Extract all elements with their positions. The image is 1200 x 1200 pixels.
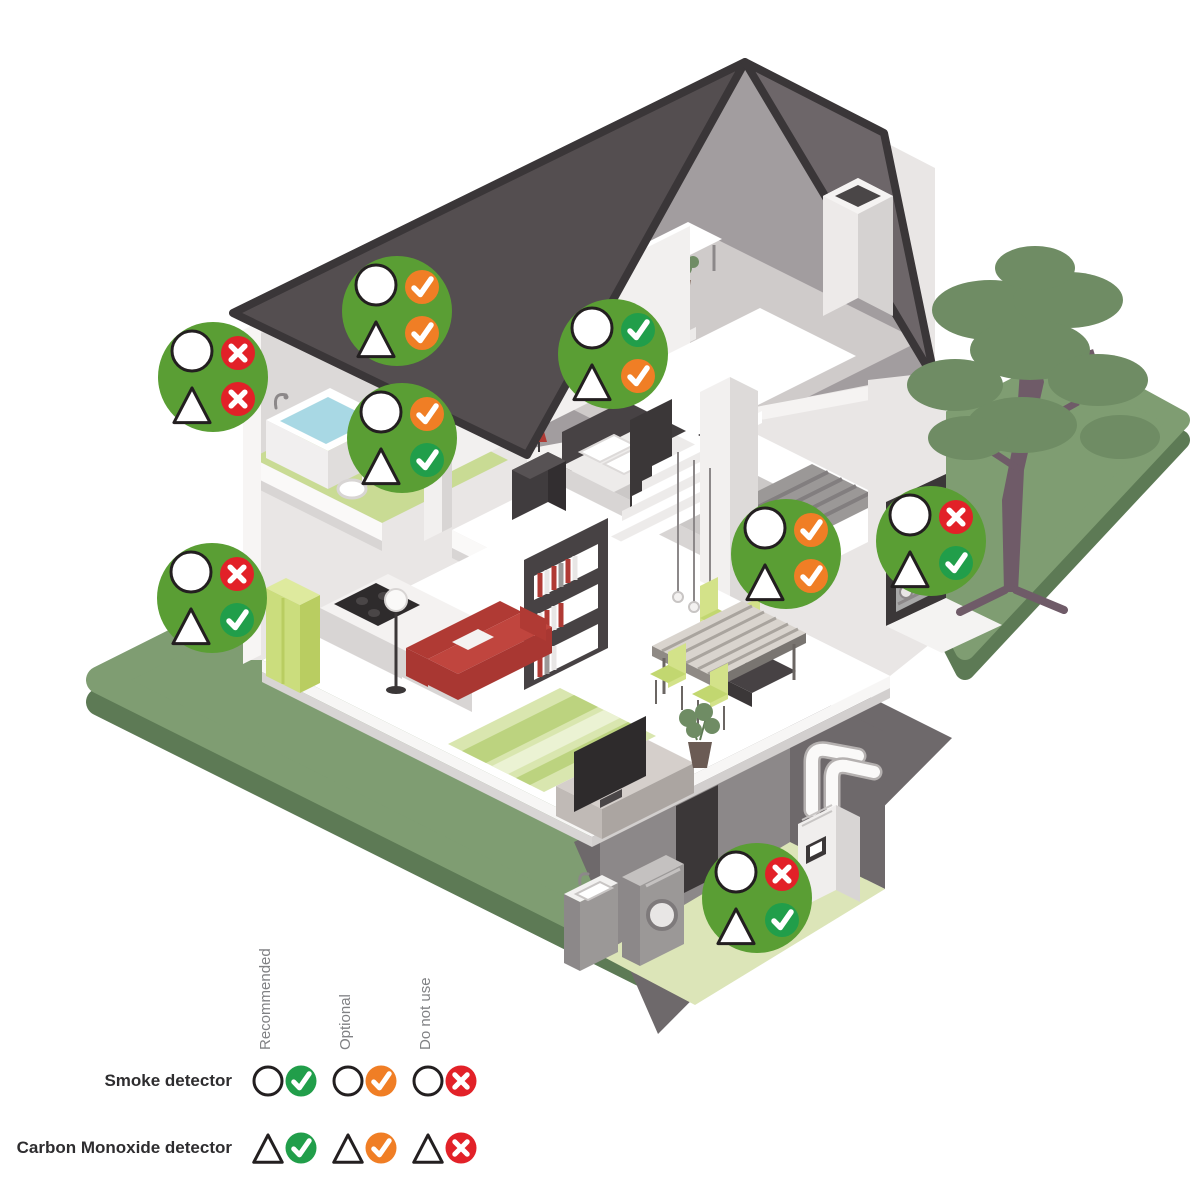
co-detector-symbol [254, 1135, 283, 1162]
co-status-check-mark-icon [621, 359, 655, 393]
legend-cell-smoke-optional [330, 1063, 399, 1104]
detector-badge-attic [341, 255, 453, 367]
legend-row-label-smoke: Smoke detector [0, 1071, 232, 1091]
co-status-check-mark-icon [939, 546, 973, 580]
co-status-check-mark-icon [410, 443, 444, 477]
smoke-detector-symbol [414, 1067, 442, 1095]
co-status-check-mark-icon [220, 603, 254, 637]
detector-badge-stair-landing [557, 298, 669, 410]
legend-row-label-co: Carbon Monoxide detector [0, 1138, 232, 1158]
co-optional-check-mark-icon [366, 1133, 397, 1164]
detector-badge-kitchen [156, 542, 268, 654]
smoke-do_not_use-cross-mark-icon [446, 1066, 477, 1097]
detector-badge-bedroom [346, 382, 458, 494]
co-status-check-mark-icon [794, 559, 828, 593]
smoke-detector-symbol [716, 852, 756, 892]
smoke-detector-symbol [572, 308, 612, 348]
smoke-status-check-mark-icon [410, 397, 444, 431]
smoke-status-check-mark-icon [794, 513, 828, 547]
smoke-status-cross-mark-icon [939, 500, 973, 534]
legend-cell-smoke-do_not_use [410, 1063, 479, 1104]
smoke-detector-symbol [254, 1067, 282, 1095]
co-detector-symbol [334, 1135, 363, 1162]
legend-cell-co-optional [330, 1130, 399, 1171]
smoke-status-cross-mark-icon [765, 857, 799, 891]
smoke-status-check-mark-icon [621, 313, 655, 347]
smoke-status-cross-mark-icon [220, 557, 254, 591]
legend-column-optional: Optional [337, 994, 355, 1050]
legend-cell-smoke-recommended [250, 1063, 319, 1104]
smoke-optional-check-mark-icon [366, 1066, 397, 1097]
smoke-detector-symbol [172, 331, 212, 371]
legend-cell-co-recommended [250, 1130, 319, 1171]
detector-badge-basement [701, 842, 813, 954]
legend-column-recommended: Recommended [257, 948, 275, 1050]
smoke-detector-symbol [745, 508, 785, 548]
detector-badge-living-dining [730, 498, 842, 610]
smoke-detector-symbol [171, 552, 211, 592]
co-status-check-mark-icon [765, 903, 799, 937]
smoke-detector-symbol [361, 392, 401, 432]
smoke-detector-symbol [334, 1067, 362, 1095]
smoke-status-cross-mark-icon [221, 336, 255, 370]
co-status-check-mark-icon [405, 316, 439, 350]
smoke-recommended-check-mark-icon [286, 1066, 317, 1097]
chimney [823, 178, 893, 316]
co-detector-symbol [414, 1135, 443, 1162]
detector-badge-garage [875, 485, 987, 597]
co-recommended-check-mark-icon [286, 1133, 317, 1164]
co-do_not_use-cross-mark-icon [446, 1133, 477, 1164]
smoke-detector-symbol [356, 265, 396, 305]
co-status-cross-mark-icon [221, 382, 255, 416]
detector-badge-bathroom-eaves [157, 321, 269, 433]
smoke-status-check-mark-icon [405, 270, 439, 304]
legend-column-do_not_use: Do not use [417, 977, 435, 1050]
smoke-detector-symbol [890, 495, 930, 535]
fridge [266, 578, 320, 693]
infographic-page: RecommendedOptionalDo not useSmoke detec… [0, 0, 1200, 1200]
legend-cell-co-do_not_use [410, 1130, 479, 1171]
